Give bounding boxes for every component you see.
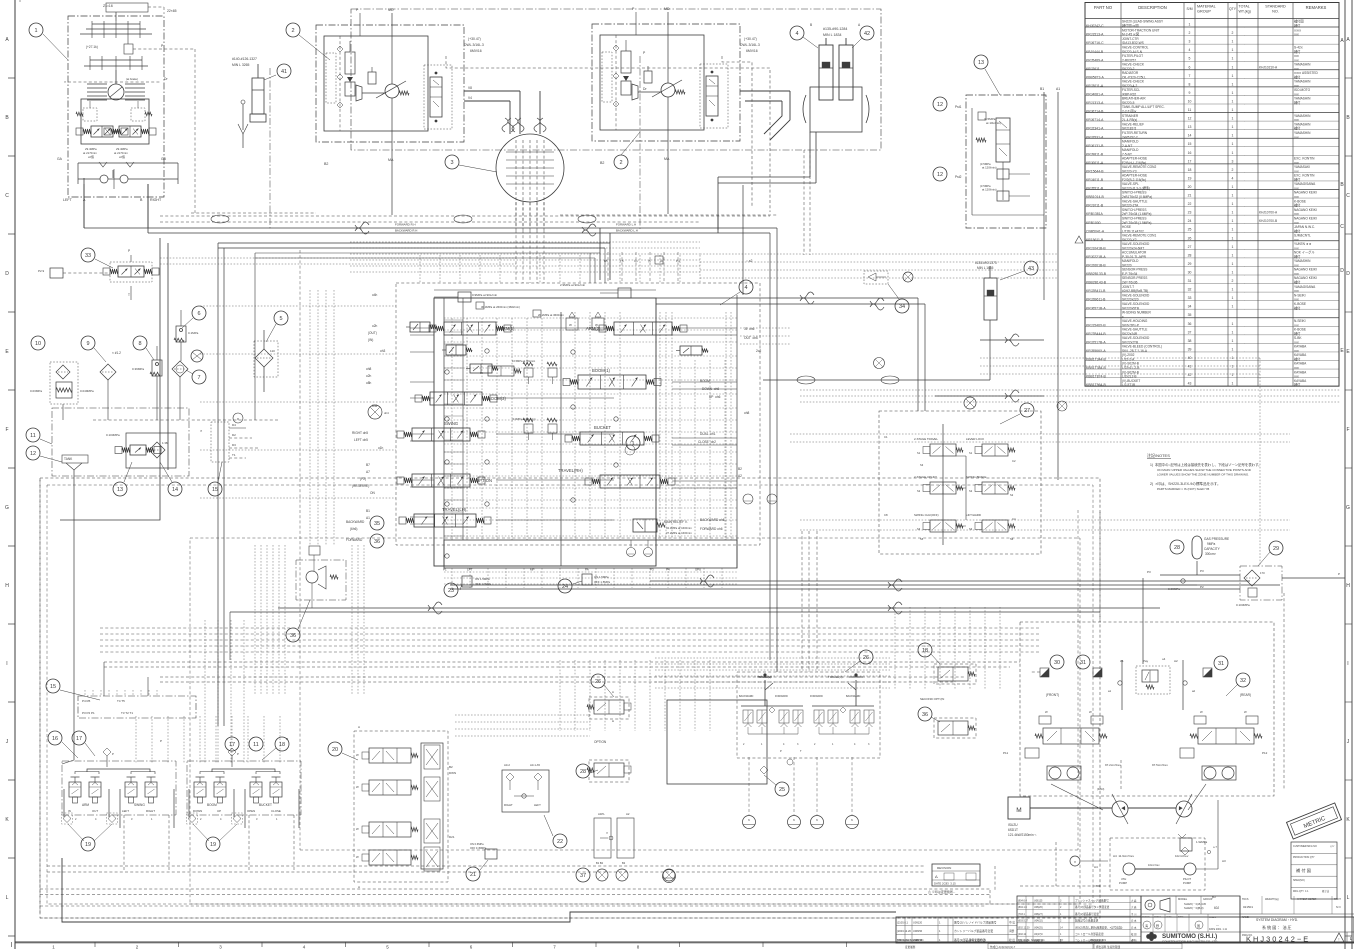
svg-text:Pst2: Pst2 [955,175,962,179]
svg-text:W: W [1089,710,1092,714]
svg-text:海野: 海野 [1009,929,1015,933]
svg-text:VALVE-SPL: VALVE-SPL [1122,182,1139,186]
svg-text:SWING: SWING [134,803,145,807]
svg-text:1: 1 [1232,236,1234,240]
svg-text:KBB2B143-B: KBB2B143-B [1086,281,1107,285]
svg-text:A: A [612,690,614,694]
svg-text:(FAN): (FAN) [1097,787,1104,791]
svg-text:10: 10 [35,341,41,347]
svg-text:STANDARD: STANDARD [1265,5,1286,9]
svg-text:VALVE-SOLENOID: VALVE-SOLENOID [1122,336,1150,340]
svg-text:MIN L 1834: MIN L 1834 [823,33,841,37]
svg-text:SPEC(NO): SPEC(NO) [1293,879,1305,882]
svg-text:4: 4 [744,285,747,291]
svg-text:K-BOSE: K-BOSE [1294,302,1306,306]
svg-text:.: . [1244,272,1245,276]
svg-text:6h4: 6h4 [372,404,378,408]
svg-text:1: 1 [1232,365,1234,369]
svg-text:ON 0.6MPa: ON 0.6MPa [470,842,484,846]
svg-text:.: . [1244,204,1245,208]
svg-text:SYSTEM DIAGRAM・HYD.: SYSTEM DIAGRAM・HYD. [1256,918,1298,922]
svg-text:MATERIAL: MATERIAL [1197,5,1216,9]
svg-text:at 10L/min): at 10L/min) [986,121,1001,125]
svg-text:U06(26): U06(26) [1034,906,1043,909]
svg-text:F: F [5,427,8,433]
svg-text:31: 31 [1080,660,1086,666]
svg-text:15: 15 [212,487,218,493]
svg-text:U04(25): U04(25) [1034,926,1043,929]
svg-text:SH220(・3)(B-3): SH220(・3)(B-3) [1184,906,1204,910]
svg-text:野: 野 [1156,923,1159,928]
svg-text:1: 1 [1232,194,1234,198]
svg-text:ON 1.5MPa: ON 1.5MPa [594,575,609,579]
svg-text:QTY: QTY [1229,7,1237,11]
svg-text:97.5cm³/rev: 97.5cm³/rev [1152,763,1168,767]
svg-text:.: . [1244,187,1245,191]
svg-text:YAMASHIN: YAMASHIN [1294,97,1311,101]
svg-text:APPD: APPD [1178,916,1184,919]
svg-text:KHJ10210-A: KHJ10210-A [1259,65,1278,69]
svg-text:5: 5 [279,316,282,322]
svg-text:1: 1 [1232,134,1234,138]
svg-text:37: 37 [580,873,586,879]
svg-text:P3: P3 [650,568,654,572]
svg-text:35: 35 [1188,313,1192,317]
svg-text:A3-2: A3-2 [504,763,510,767]
svg-text:ISO-MOTO: ISO-MOTO [1294,88,1311,92]
svg-text:KRJ1513-A: KRJ1513-A [1086,33,1104,37]
svg-text:a2: a2 [1192,689,1196,693]
svg-text:MA: MA [388,158,394,162]
svg-text:OPTION: OPTION [594,740,607,744]
svg-text:23: 23 [1188,211,1192,215]
svg-text:0.63MPa: 0.63MPa [1168,587,1180,591]
svg-text:2o2: 2o2 [756,349,762,353]
svg-text:B1 B2: B1 B2 [596,861,604,865]
svg-text:.: . [1244,298,1245,302]
svg-text:.: . [1244,349,1245,353]
svg-text:(703.1: (703.1 [1018,913,1025,916]
svg-text:o2h: o2h [366,374,372,378]
svg-text:JOINT-T: JOINT-T [1122,285,1134,289]
svg-text:DATE 2001. 1.11: DATE 2001. 1.11 [1209,928,1228,931]
svg-text:PUMP: PUMP [1183,881,1191,885]
svg-text:S2: S2 [917,489,921,493]
svg-text:6: 6 [1189,65,1191,69]
svg-text:D: D [1346,271,1350,277]
svg-text:B3: B3 [1212,895,1216,899]
svg-text:2-STAGE UPLIFT: 2-STAGE UPLIFT [914,475,937,479]
svg-text:LOWER VALUES SHOW THE ZONE NUM: LOWER VALUES SHOW THE ZONE NUMBER OF THI… [1157,473,1249,477]
svg-text:ON: ON [370,491,375,495]
svg-text:DWN: DWN [449,771,456,775]
svg-text:.: . [1244,76,1245,80]
svg-text:YAMAGISAWA: YAMAGISAWA [1294,182,1316,186]
svg-text:BACKWARD: BACKWARD [739,695,754,698]
svg-text:OUT oh6: OUT oh6 [744,336,758,340]
svg-text:B2: B2 [622,861,626,865]
svg-text:IN: IN [68,809,71,813]
svg-text:.: . [1244,366,1245,370]
svg-text:SWING BRAKE: SWING BRAKE [966,475,986,479]
svg-text:.: . [1244,238,1245,242]
svg-text:BACKWARD: BACKWARD [846,695,861,698]
svg-text:1: 1 [1232,288,1234,292]
svg-text:JOINT-CTR: JOINT-CTR [1122,37,1139,41]
svg-text:KRJ2B611-B: KRJ2B611-B [1086,298,1106,302]
svg-text:KRJ5511-B: KRJ5511-B [1086,187,1104,191]
svg-text:Δ: Δ [612,719,614,723]
svg-text:#135-#90-1284: #135-#90-1284 [823,27,847,31]
svg-text:UP: UP [217,809,221,813]
svg-text:KAYABA: KAYABA [1294,379,1307,383]
svg-text:ON MAIN○UPPER VALUES SHOW THE: ON MAIN○UPPER VALUES SHOW THE CONNECTIVE… [1157,468,1252,472]
svg-text:1: 1 [1232,339,1234,343]
svg-text:A3: A3 [1222,859,1226,863]
svg-text:BOOM(1): BOOM(1) [592,368,611,373]
svg-text:.: . [1244,255,1245,259]
svg-text:1: 1 [1232,185,1234,189]
svg-text:ⅩⅨ: ⅩⅨ [1294,135,1299,139]
svg-text:TANK-SUMP ALL/LIFT SPEC.: TANK-SUMP ALL/LIFT SPEC. [1122,105,1165,109]
svg-text:注記/NOTES: 注記/NOTES [1147,452,1170,458]
svg-text:1: 1 [1232,373,1234,377]
svg-text:I: I [6,661,7,667]
svg-text:P11: P11 [1003,751,1008,755]
svg-text:LEVER LOCK: LEVER LOCK [966,437,984,441]
svg-text:SWITCH-PRESS: SWITCH-PRESS [1122,216,1146,220]
svg-text:.: . [1244,110,1245,114]
svg-text:19: 19 [210,842,216,848]
svg-text:.: . [1244,135,1245,139]
svg-text:x2個: x2個 [119,155,125,159]
svg-text:32: 32 [1240,678,1246,684]
svg-text:松 田: 松 田 [1009,938,1015,942]
svg-text:P3: P3 [1147,570,1151,574]
svg-text:S3: S3 [920,463,924,467]
svg-text:WEIGHT(kg): WEIGHT(kg) [1265,898,1279,901]
svg-text:NAGANO KEIKI: NAGANO KEIKI [1294,268,1317,272]
svg-text:L: L [1350,936,1353,941]
svg-text:1: 1 [1189,23,1191,27]
svg-text:FILTER-PILOT: FILTER-PILOT [1122,54,1143,58]
svg-text:TRAVEL(RH): TRAVEL(RH) [558,468,583,473]
svg-text:.: . [1244,383,1245,387]
svg-text:16: 16 [1188,151,1192,155]
svg-text:(IN): (IN) [368,338,373,342]
svg-text:24: 24 [1188,219,1192,223]
svg-text:MANIFOLD: MANIFOLD [1122,139,1139,143]
svg-text:紙寸法: 紙寸法 [1322,889,1330,893]
svg-text:Pst1: Pst1 [955,105,962,109]
svg-text:製品記号の品番変更: 製品記号の品番変更 [1075,919,1099,923]
svg-text:SWITCH-PRESS: SWITCH-PRESS [1122,191,1146,195]
svg-text:NAGANO KEIKI: NAGANO KEIKI [1294,276,1317,280]
svg-text:.: . [1244,24,1245,28]
svg-text:MFG QTY 1:1: MFG QTY 1:1 [1293,890,1309,893]
svg-text:CAPACITY: CAPACITY [1204,547,1221,551]
svg-text:KRJ5489-A: KRJ5489-A [1086,58,1104,62]
svg-text:25: 25 [779,787,785,793]
svg-text:0.049MPa: 0.049MPa [80,389,94,393]
svg-text:RADIATOR: RADIATOR [1122,71,1139,75]
svg-text:41: 41 [1188,365,1192,369]
svg-text:RIGHT: RIGHT [504,803,513,807]
svg-text:37.2MPa at 160l/min: 37.2MPa at 160l/min [666,531,692,535]
svg-text:KRJ6714-B: KRJ6714-B [1086,110,1104,114]
svg-text:S5: S5 [920,537,924,541]
svg-text:PART NO: PART NO [1094,5,1113,10]
svg-text:U06(27): U06(27) [1034,913,1043,916]
svg-text:PARTS MARKED × IS (NOT) SLED Y: PARTS MARKED × IS (NOT) SLED YB [1157,487,1209,491]
svg-text:(65)(2)見直し更新(品番変更、×記号追加): (65)(2)見直し更新(品番変更、×記号追加) [1075,925,1122,929]
svg-text:3: 3 [450,160,453,166]
svg-text:CNB5041-A: CNB5041-A [1086,229,1105,233]
svg-text:Z1=16: Z1=16 [103,4,113,8]
svg-text:OFF 1.0MPa: OFF 1.0MPa [475,582,491,586]
svg-text:C2: C2 [1012,459,1016,463]
svg-text:.: . [1244,144,1245,148]
svg-text:KBJ0444-B: KBJ0444-B [1086,50,1104,54]
svg-text:白 木: 白 木 [1131,919,1137,923]
svg-text:DRAFT: DRAFT [1154,916,1161,919]
svg-text:1:38: 1:38 [162,441,168,445]
svg-text:27: 27 [1188,245,1192,249]
svg-text:35: 35 [374,521,380,527]
svg-text:P4: P4 [666,568,670,572]
svg-text:(V)-BUCKET: (V)-BUCKET [1122,379,1140,383]
svg-text:6: 6 [197,311,200,317]
svg-text:P: P [1338,572,1340,576]
svg-text:o4: o4 [1162,657,1166,661]
svg-text:W: W [356,785,359,789]
svg-text:2) ×印は、SH220-3LEX-9の標準品を示す。: 2) ×印は、SH220-3LEX-9の標準品を示す。 [1150,481,1221,486]
svg-text:P: P [112,752,114,756]
svg-text:番号(3)部品番号タンク図変更: 番号(3)部品番号タンク図変更 [1075,905,1110,909]
svg-text:11: 11 [30,433,36,439]
svg-text:SWING CHU(OFF): SWING CHU(OFF) [914,513,939,517]
svg-text:番号(2)ソレノイドバルブ部品番号: 番号(2)ソレノイドバルブ部品番号 [954,921,997,925]
svg-text:K-BOSE: K-BOSE [1294,328,1306,332]
svg-text:H: H [5,583,9,589]
svg-text:1: 1 [1232,330,1234,334]
svg-text:1: 1 [1232,253,1234,257]
svg-text:OPTION: OPTION [476,478,492,483]
svg-text:VALVE-REMOTE CON2: VALVE-REMOTE CON2 [1122,165,1156,169]
svg-text:VALVE-CHECK: VALVE-CHECK [1122,62,1145,66]
svg-text:43: 43 [1028,266,1034,272]
svg-text:B7: B7 [366,463,370,467]
svg-text:(+30.47): (+30.47) [468,37,481,41]
svg-text:MAIN RELIEF V.: MAIN RELIEF V. [664,520,688,524]
svg-text:D21: D21 [449,835,455,839]
svg-text:.: . [1244,341,1245,345]
svg-text:VALVE-RELIEF: VALVE-RELIEF [1122,122,1144,126]
svg-text:33: 33 [1188,296,1192,300]
svg-text:1: 1 [1232,91,1234,95]
svg-text:SECOND OPT.(IN: SECOND OPT.(IN [920,697,944,701]
svg-text:変更履歴: 変更履歴 [905,945,916,949]
svg-text:S-BK: S-BK [1294,336,1302,340]
svg-text:(6h6): (6h6) [350,527,357,531]
svg-text:NO.: NO. [1272,10,1279,14]
svg-text:YAMASAKI: YAMASAKI [1294,165,1310,169]
svg-text:KHJ10700-A: KHJ10700-A [1259,211,1278,215]
svg-text:38: 38 [1188,339,1192,343]
svg-text:A: A [358,885,360,889]
svg-text:A3-1 A5: A3-1 A5 [530,763,540,767]
svg-text:P3 P2 P1: P3 P2 P1 [82,711,95,715]
svg-text:A: A [358,725,360,729]
svg-text:.: . [1244,178,1245,182]
svg-text:0.103MPa: 0.103MPa [1236,603,1250,607]
svg-text:ON 1.5MPa: ON 1.5MPa [475,577,490,581]
svg-text:G: G [1346,505,1350,511]
svg-text:(V)-S02M-B: (V)-S02M-B [1122,370,1139,374]
svg-text:.: . [1244,247,1245,251]
svg-text:33: 33 [85,253,91,259]
svg-text:LEFT: LEFT [122,809,129,813]
svg-text:15: 15 [50,684,56,690]
svg-text:VALVE-SOLENOID: VALVE-SOLENOID [1122,302,1150,306]
svg-text:HOSE: HOSE [1122,225,1131,229]
svg-text:11: 11 [253,742,259,748]
svg-text:at 120l/min): at 120l/min) [982,188,997,192]
svg-text:2.9MPa at 90L/min: 2.9MPa at 90L/min [560,283,586,287]
svg-text:GAS PRESSURE: GAS PRESSURE [1204,537,1229,541]
svg-text:P2: P2 [1200,585,1204,589]
svg-text:KBB2B133-B: KBB2B133-B [1086,272,1107,276]
svg-text:FORWARD: FORWARD [346,538,363,542]
svg-text:P4 R5: P4 R5 [82,699,91,703]
svg-text:#135-#90-1373: #135-#90-1373 [975,261,997,265]
svg-text:16: 16 [52,736,58,742]
svg-text:U04(32): U04(32) [1034,920,1043,923]
svg-text:SCALE: SCALE [1209,916,1217,919]
svg-text:1: 1 [1232,82,1234,86]
svg-text:o4h: o4h [372,293,378,297]
svg-text:S1: S1 [969,451,973,455]
svg-text:VALVE-SHUTTLE: VALVE-SHUTTLE [1122,328,1147,332]
svg-text:EXC. KONTIN: EXC. KONTIN [1294,157,1315,161]
svg-text:(OUT): (OUT) [368,331,377,335]
svg-text:97.2cm³/rev: 97.2cm³/rev [1105,763,1121,767]
svg-text:A2: A2 [738,474,742,478]
svg-text:(603.5.27: (603.5.27 [1018,920,1029,923]
svg-text:FILTER-RETURN: FILTER-RETURN [1122,131,1148,135]
svg-text:W: W [356,855,359,859]
svg-text:U06125: U06125 [1034,900,1043,903]
svg-text:U09120: U09120 [913,921,923,925]
svg-text:1: 1 [1232,202,1234,206]
svg-text:1: 1 [1232,322,1234,326]
svg-text:R E V I S I O N: R E V I S I O N [970,939,986,942]
svg-text:OFF 1.5MPa: OFF 1.5MPa [594,580,610,584]
svg-text:1) 本図中の○記号は上段は接続先を表わし、下段はゾーン記: 1) 本図中の○記号は上段は接続先を表わし、下段はゾーン記号を表わす。 [1150,462,1262,467]
svg-text:(2105.6.1: (2105.6.1 [897,921,909,925]
svg-text:TANK: TANK [64,457,73,461]
svg-text:(REAR): (REAR) [1240,693,1251,697]
svg-text:H: H [1346,583,1350,589]
svg-text:OPEN: OPEN [247,809,255,813]
svg-text:6MV/16: 6MV/16 [470,49,482,53]
svg-text:12: 12 [937,102,943,108]
svg-text:補付: 補付 [1294,305,1301,310]
svg-text:32: 32 [1188,288,1192,292]
svg-text:19: 19 [1188,176,1192,180]
svg-text:C1: C1 [884,435,888,439]
svg-text:ADAPTER-HOSE: ADAPTER-HOSE [1122,174,1147,178]
svg-text:W-SDING NUMBER: W-SDING NUMBER [1122,310,1152,314]
svg-text:F: F [1346,427,1349,433]
svg-text:S1: S1 [917,451,921,455]
svg-text:KRJ2661B-B: KRJ2661B-B [1086,264,1106,268]
svg-text:BUCKET: BUCKET [594,425,611,430]
svg-text:A7: A7 [366,470,370,474]
svg-text:DESCRIPTION: DESCRIPTION [1138,5,1167,10]
svg-text:oh3: oh3 [380,349,386,353]
svg-text:W: W [1045,710,1048,714]
svg-text:FORWARD oh6: FORWARD oh6 [700,527,723,531]
svg-text:KRJ6131-B: KRJ6131-B [1086,144,1104,148]
svg-text:UP oh6: UP oh6 [709,395,721,399]
svg-text:SH220 (LEAD-SWING ASSY: SH220 (LEAD-SWING ASSY [1122,20,1164,24]
svg-text:BREATHER-AIR: BREATHER-AIR [1122,97,1146,101]
svg-text:25: 25 [1188,228,1192,232]
svg-text:1: 1 [1232,57,1234,61]
svg-text:YAMASHIN: YAMASHIN [1294,114,1311,118]
svg-text:x2個: x2個 [88,155,94,159]
svg-text:白 木: 白 木 [1131,925,1137,929]
svg-text:BACKWARD L.H: BACKWARD L.H [616,229,638,233]
svg-text:39: 39 [1188,347,1192,351]
svg-text:番号(2)製品番号変更: 番号(2)製品番号変更 [1075,912,1099,916]
svg-text:(402.11: (402.11 [1018,933,1027,936]
svg-text:(2003.12.20: (2003.12.20 [897,929,911,933]
svg-text:A1: A1 [660,259,664,263]
svg-text:KAYABA: KAYABA [1294,345,1307,349]
svg-text:L: L [1347,895,1350,901]
svg-text:KHJ10700-B: KHJ10700-B [1259,219,1277,223]
svg-text:補付図: 補付図 [1294,19,1304,24]
svg-text:GA: GA [57,157,63,161]
svg-text:29: 29 [1273,546,1279,552]
svg-text:MOTOR-TRACTION UNIT: MOTOR-TRACTION UNIT [1122,28,1160,32]
svg-text:16.5MPa at 70L/min: 16.5MPa at 70L/min [512,359,536,363]
svg-text:37: 37 [1188,330,1192,334]
svg-text:×: × [64,80,66,84]
svg-text:.: . [1244,264,1245,268]
svg-text:C: C [1340,224,1344,230]
svg-text:FORWARD R.H: FORWARD R.H [395,223,416,227]
svg-text:T/M DATE SIGNED NO.: T/M DATE SIGNED NO. [1018,939,1045,942]
svg-text:MANIFOLD: MANIFOLD [1122,148,1139,152]
svg-text:41: 41 [281,69,287,75]
svg-text:#140-#126-1327: #140-#126-1327 [232,57,257,61]
svg-text:15: 15 [1188,142,1192,146]
svg-text:DOWN: DOWN [193,809,202,813]
svg-text:KR15644-B: KR15644-B [1086,169,1104,173]
svg-text:36: 36 [374,539,380,545]
svg-text:S/M: S/M [1186,7,1192,11]
svg-text:国: 国 [1197,923,1200,928]
svg-text:43: 43 [1188,382,1192,386]
svg-text:カントリーバルブ製品番号変更: カントリーバルブ製品番号変更 [954,929,993,933]
svg-text:プレッシャスイッチ部品番号: プレッシャスイッチ部品番号 [1075,899,1109,903]
svg-text:(3.0MPa at 20L/min): (3.0MPa at 20L/min) [512,417,536,421]
svg-text:作成日 A(4)(3)(2)(1)-7: 作成日 A(4)(3)(2)(1)-7 [990,945,1016,949]
svg-text:L: L [6,895,9,901]
